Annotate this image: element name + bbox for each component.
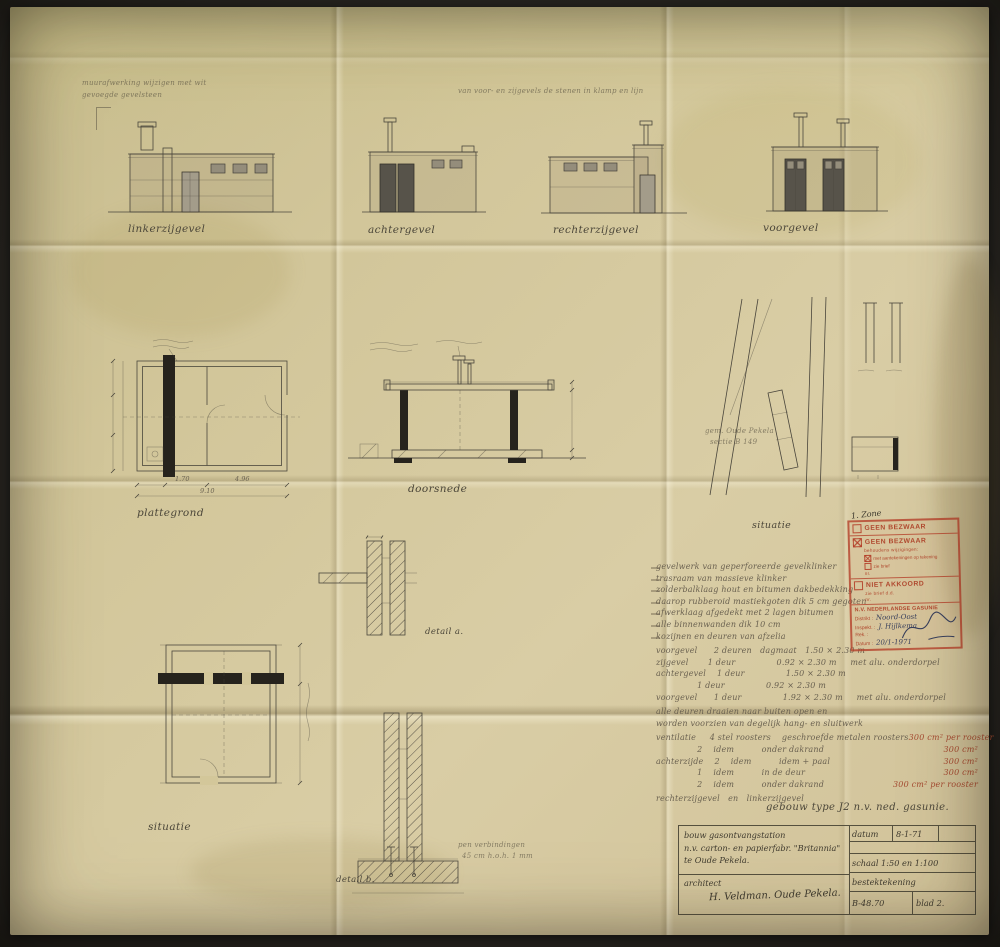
vent-text: 1 idem in de deur [656, 767, 805, 779]
doc-type: bestektekening [849, 876, 919, 888]
project-line-2: n.v. carton- en papierfabr. "Britannia" [684, 842, 845, 855]
stamp-company-block: N.V. NEDERLANDSE GASUNIE Distrikt : Noor… [852, 603, 961, 650]
elevation-rear-drawing [358, 108, 490, 218]
checkbox-unchecked-icon [852, 524, 861, 533]
building-type-note: gebouw type J2 n.v. ned. gasunie. [766, 802, 949, 813]
site-plan-label: situatie [752, 520, 791, 531]
elevation-right-label: rechterzijgevel [553, 224, 639, 236]
stamp-field-label: Rek. : [855, 632, 868, 638]
project-line-3: te Oude Pekela. [684, 854, 845, 867]
stamp-field-value: 20/1-1971 [876, 639, 912, 647]
architect-label: architect [684, 878, 721, 888]
stamp-field-label: Distrikt : [855, 616, 873, 622]
title-block-meta-cells: datum 8-1-71 schaal 1:50 en 1:100 bestek… [849, 826, 975, 914]
stamp-row-niet-akkoord: NIET AKKOORD zie brief d.d. nr. [851, 577, 960, 606]
door-schedule-line: 1 deur 0.92 × 2.30 m [656, 680, 978, 692]
stamp-option-label: GEEN BEZWAAR [864, 523, 926, 532]
top-left-annotation-line1: muurafwerking wijzigen met wit [82, 79, 207, 87]
sheet-number: blad 2. [913, 897, 947, 909]
gasunie-approval-stamp: GEEN BEZWAAR GEEN BEZWAAR behoudens wijz… [847, 518, 962, 652]
datum-label: datum [849, 828, 881, 840]
top-center-annotation: van voor- en zijgevels de stenen in klam… [458, 87, 643, 95]
elevation-front-label: voorgevel [763, 222, 819, 234]
stamp-field-label: Datum : [855, 641, 873, 647]
site-note-line2: sectie B 149 [710, 438, 757, 446]
plan-dimension-segment-1: 1.70 [175, 475, 189, 483]
vent-red-note: 300 cm² [944, 767, 979, 779]
vent-schedule-line: 2 idem onder dakrand 300 cm² [656, 744, 978, 756]
door-schedule-line: zijgevel 1 deur 0.92 × 2.30 m met alu. o… [656, 657, 978, 669]
vent-red-note: 300 cm² per rooster [893, 779, 978, 791]
checkbox-checked-icon [853, 538, 862, 547]
stamp-nr-field: nr. [865, 595, 956, 602]
fold-crease [10, 239, 989, 253]
section-label: doorsnede [408, 483, 467, 495]
stamp-nr-field: nr. [865, 569, 956, 576]
vent-red-note: 300 cm² [944, 756, 979, 768]
elevation-front-drawing [763, 105, 891, 217]
vent-text: 2 idem onder dakrand [656, 779, 824, 791]
stamp-sub-option: met aantekeningen op tekening [873, 554, 937, 561]
stamp-option-label: NIET AKKOORD [866, 580, 924, 589]
vent-schedule-line: achterzijde 2 idem idem + paal 300 cm² [656, 756, 978, 768]
detail-a-label: detail a. [425, 627, 463, 637]
title-block: bouw gasontvangstation n.v. carton- en p… [678, 825, 976, 915]
plan-dimension-segment-2: 4.96 [235, 475, 249, 483]
vent-schedule-line: 2 idem onder dakrand 300 cm² per rooster [656, 779, 978, 791]
note-line: worden voorzien van degelijk hang- en sl… [656, 718, 978, 730]
checkbox-unchecked-icon [854, 581, 863, 590]
checkbox-unchecked-icon [864, 563, 871, 570]
ground-plan-drawing [148, 623, 333, 803]
site-plan-sketch [668, 295, 933, 500]
stamp-row-geen-bezwaar-2: GEEN BEZWAAR behoudens wijzigingen: met … [850, 534, 959, 580]
plan-dimension-total: 9.10 [200, 487, 214, 495]
architect-name: H. Veldman. Oude Pekela. [709, 888, 841, 904]
elevation-rear-label: achtergevel [368, 224, 435, 236]
stamp-field-value: J. Hijlkema [878, 622, 917, 630]
top-left-annotation-line2: gevoegde gevelsteen [82, 91, 162, 99]
drawing-sheet: muurafwerking wijzigen met wit gevoegde … [10, 7, 989, 935]
detail-b-note-line2: 45 cm h.o.h. 1 mm [462, 852, 533, 860]
vent-text: ventilatie 4 stel roosters geschroefde m… [656, 732, 909, 744]
note-line: alle deuren draaien naar buiten open en [656, 706, 978, 718]
detail-b-label: detail b. [336, 875, 375, 885]
checkbox-checked-icon [864, 554, 871, 561]
title-block-divider [679, 874, 849, 875]
stamp-option-label: GEEN BEZWAAR [865, 537, 927, 546]
stamp-field-label: Inspekt. : [855, 624, 875, 631]
floor-plan-drawing [95, 335, 320, 505]
stamp-sub-option: zie brief [873, 563, 889, 568]
photo-of-architectural-drawing: muurafwerking wijzigen met wit gevoegde … [0, 0, 1000, 947]
vent-text: achterzijde 2 idem idem + paal [656, 756, 830, 768]
ground-plan-label: situatie [148, 821, 191, 833]
stamp-field-value: Noord-Oost [876, 613, 917, 621]
drawing-number: B-48.70 [849, 897, 887, 909]
vent-red-note: 300 cm² per rooster [909, 732, 994, 744]
door-schedule-line: achtergevel 1 deur 1.50 × 2.30 m [656, 668, 978, 680]
site-note-line1: gem. Oude Pekela [705, 427, 774, 435]
vent-red-note: 300 cm² [944, 744, 979, 756]
section-drawing [340, 340, 595, 485]
project-line-1: bouw gasontvangstation [684, 829, 845, 842]
elevation-left-label: linkerzijgevel [128, 223, 205, 235]
datum-value: 8-1-71 [893, 828, 925, 840]
door-schedule-line: voorgevel 1 deur 1.92 × 2.30 m met alu. … [656, 692, 978, 704]
vent-text: 2 idem onder dakrand [656, 744, 824, 756]
elevation-left-side-drawing [105, 110, 295, 218]
title-block-project-cell: bouw gasontvangstation n.v. carton- en p… [679, 826, 850, 914]
schaal-value: schaal 1:50 en 1:100 [849, 857, 941, 869]
vent-schedule-line: ventilatie 4 stel roosters geschroefde m… [656, 732, 978, 744]
floor-plan-label: plattegrond [137, 507, 204, 519]
vent-schedule-line: 1 idem in de deur 300 cm² [656, 767, 978, 779]
detail-b-note-line1: pen verbindingen [458, 841, 525, 849]
elevation-right-side-drawing [538, 113, 690, 219]
